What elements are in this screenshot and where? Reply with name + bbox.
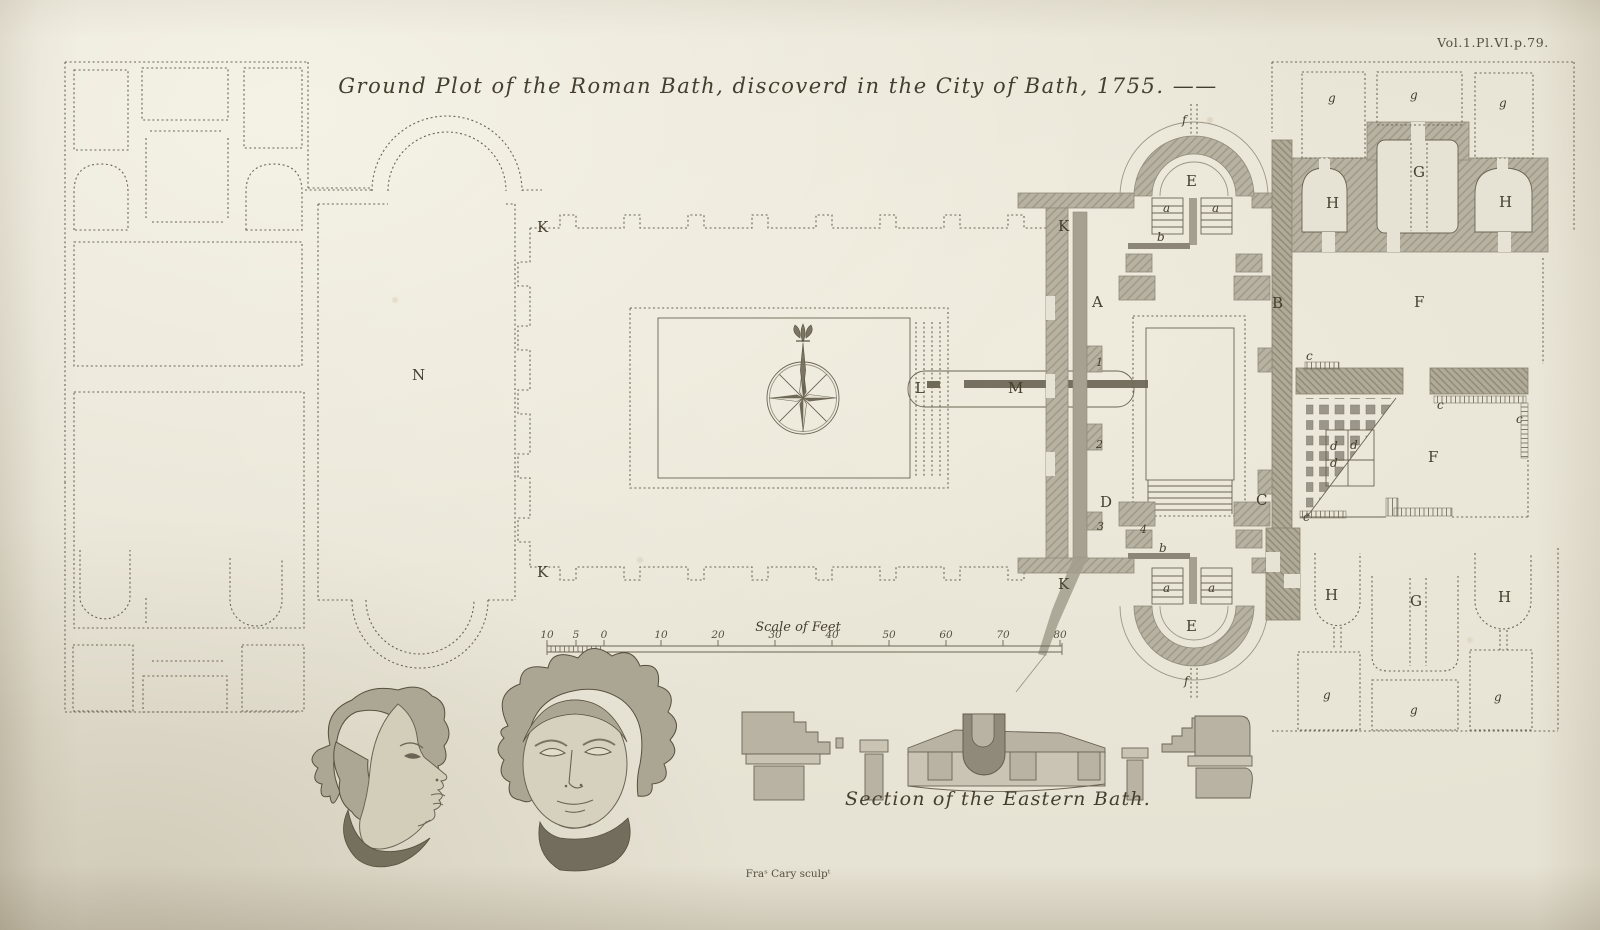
court-south-border [530,567,1046,580]
feature-g-1: g [1328,91,1336,105]
room-label-G-north: G [1413,163,1425,181]
feature-g-3: g [1499,96,1507,110]
south-apse [1134,606,1254,666]
room-G-south [1372,576,1458,671]
scale-tick-8: 60 [939,629,953,641]
scale-tick-3: 10 [654,629,668,641]
engraver-credit: Fraˢ Cary sculpᵗ [746,868,831,880]
sculpture-head-profile [312,687,449,867]
court-north-border [530,215,1046,228]
feature-a-4: a [1208,581,1215,595]
feature-c-2: c [1437,398,1444,412]
feature-g-4: g [1323,688,1331,702]
room-label-M: M [1008,379,1024,397]
plate-number: Vol.1.Pl.VI.p.79. [1436,35,1549,50]
plan-drawing: Vol.1.Pl.VI.p.79. Ground Plot of the Rom… [0,0,1600,930]
feature-a-3: a [1163,581,1170,595]
room-label-H-ne: H [1499,193,1513,211]
west-wing-outlines [65,62,372,712]
compass-rose [767,324,839,434]
feature-c-1: c [1306,349,1313,363]
fleur-de-lis-icon [794,324,812,342]
scale-tick-7: 50 [882,629,896,641]
room-label-H-sw: H [1325,586,1339,604]
feature-2: 2 [1095,438,1103,451]
feature-b-2: b [1159,541,1167,555]
feature-c-4: c [1303,510,1310,524]
feature-a-1: a [1163,201,1170,215]
section-caption: Section of the Eastern Bath. [845,788,1151,810]
scale-tick-9: 70 [996,629,1010,641]
hall-n-outline [305,116,542,668]
bath-complex [1016,104,1300,698]
bath-steps [1148,480,1232,514]
sculpture-head-frontal [498,648,677,871]
plate-title: Ground Plot of the Roman Bath, discoverd… [338,74,1217,98]
feature-f-1: f [1181,113,1189,127]
room-G-north [1377,140,1458,233]
feature-a-2: a [1212,201,1219,215]
feature-g-5: g [1410,703,1418,717]
room-H-northwest [1302,168,1347,232]
east-wall [1272,140,1292,580]
room-label-D: D [1100,493,1113,511]
room-label-F-lower: F [1428,448,1439,466]
feature-d-2: d [1350,438,1358,452]
feature-d-3: d [1330,456,1338,470]
scale-tick-0: 10 [540,629,554,641]
conduit-stub [927,381,940,388]
roman-drain [1073,212,1087,558]
scale-tick-6: 40 [824,629,839,641]
room-g-2 [1377,72,1462,125]
feature-d-1: d [1330,439,1338,453]
room-label-K-4: K [1058,575,1070,593]
apse-axis-marks [1191,104,1197,698]
eastern-bath-basin [1146,328,1234,480]
pool-steps [916,322,940,476]
feature-g-6: g [1494,690,1502,704]
engraving-plate: Vol.1.Pl.VI.p.79. Ground Plot of the Rom… [0,0,1600,930]
feature-c-3: c [1516,412,1523,426]
room-label-K-2: K [1058,217,1070,235]
feature-4: 4 [1139,523,1147,536]
room-label-C: C [1256,491,1268,509]
scale-tick-4: 20 [710,629,725,641]
room-label-H-se: H [1498,588,1512,606]
court-west-border [518,228,530,567]
room-label-L: L [915,379,925,397]
scale-tick-10: 80 [1053,629,1067,641]
room-g-1 [1302,72,1365,158]
room-g-3 [1475,73,1533,158]
room-label-N: N [412,366,426,384]
feature-3: 3 [1097,520,1104,533]
feature-b-1: b [1157,230,1165,244]
scale-tick-5: 30 [768,629,782,641]
room-label-B: B [1272,294,1284,312]
feature-g-2: g [1410,88,1418,102]
feature-1: 1 [1096,356,1103,369]
section-drawing [742,712,1252,800]
room-label-E-south: E [1186,617,1197,635]
feature-f-2: f [1183,674,1191,688]
scale-tick-1: 5 [573,629,580,641]
room-label-F-upper: F [1414,293,1425,311]
room-label-H-nw: H [1326,194,1340,212]
room-label-A: A [1091,293,1103,311]
scale-tick-2: 0 [601,629,608,641]
room-label-G-south: G [1410,592,1422,610]
room-label-E-north: E [1186,172,1197,190]
room-label-K-1: K [537,218,549,236]
water-conduit [908,371,1148,407]
drain-outfall [1016,654,1046,692]
room-label-K-3: K [537,563,549,581]
